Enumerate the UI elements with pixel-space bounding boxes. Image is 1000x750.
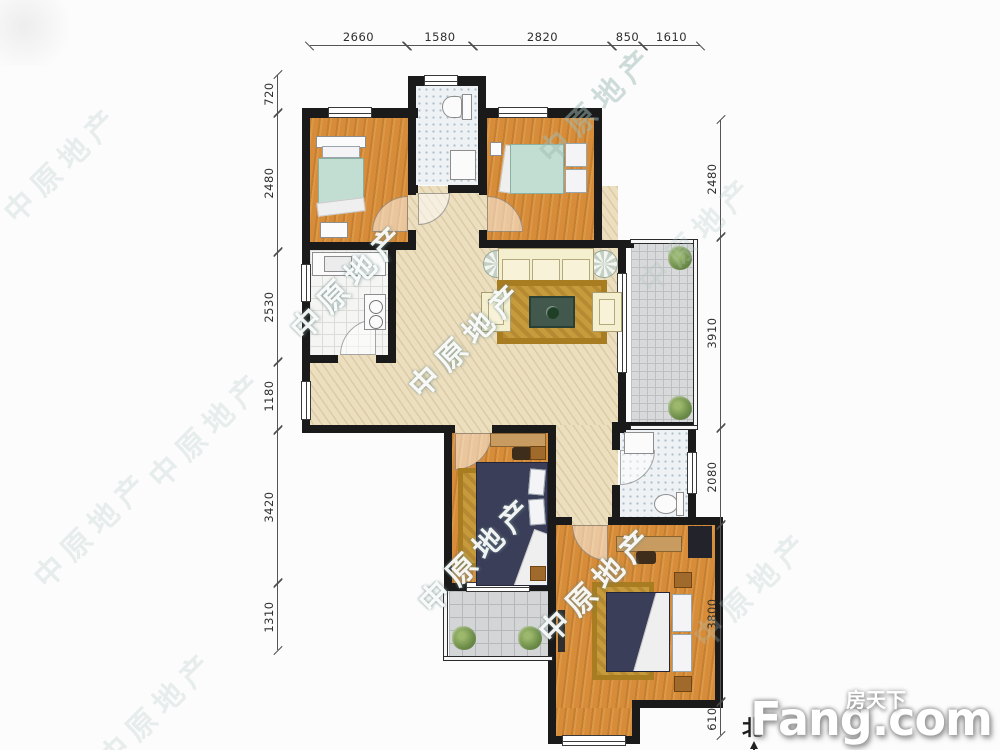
watermark-text: 中原地产 [87,638,226,750]
wall [548,425,556,525]
armchair [592,292,622,332]
toilet-tank [462,94,472,120]
wall [608,517,616,525]
plant [518,626,542,650]
floor-bedroom-bottom-ext [556,708,632,736]
washbasin [450,150,476,180]
paper-smudge [0,0,80,66]
dim-label: 850 [616,30,639,44]
balcony-wall [630,425,698,430]
bed-pillow [672,594,692,632]
dim-segment-right: 610 [720,702,721,735]
dim-segment-top: 1580 [407,45,473,46]
wall [492,425,556,433]
dim-label: 2480 [705,163,719,194]
fang-logo: 房天下 Fang.com [750,692,992,746]
sofa-cushion [502,259,530,281]
wall [548,517,572,525]
bed-pillow [672,634,692,672]
wall [444,425,452,591]
wall [594,108,602,248]
wall [376,355,396,363]
wall [408,118,416,195]
wall [302,242,416,250]
wall [388,244,396,363]
bed-pillow [528,498,546,525]
bed [510,144,564,194]
plant-pot [590,250,618,278]
wall [444,583,468,591]
dim-segment-right: 3800 [720,525,721,702]
bed-pillow [322,146,360,158]
dim-label: 2080 [705,461,719,492]
stove-burner [369,300,383,314]
window [301,381,311,420]
window [687,452,697,494]
coffee-table [529,296,575,328]
stove-burner [369,315,383,329]
window [301,264,311,302]
wall [302,355,338,363]
window [498,107,548,118]
dim-label: 2820 [527,30,558,44]
watermark-text: 中原地产 [22,458,161,597]
wall [548,517,556,744]
sofa-cushion [562,259,590,281]
wall [408,230,416,242]
wall [479,118,487,195]
dim-label: 1180 [262,380,276,411]
balcony-wall [443,656,553,661]
sofa-cushion [532,259,560,281]
fang-logo-chinese: 房天下 [846,684,906,713]
nightstand [530,566,546,581]
dim-segment-left: 720 [277,75,278,113]
dim-label: 2660 [343,30,374,44]
dim-label: 3800 [705,598,719,629]
dim-segment-top: 1610 [643,45,700,46]
armchair-cushion [599,299,615,325]
tv [558,610,565,652]
bed-blanket [633,592,670,672]
toilet-tank [676,492,684,516]
wardrobe [688,526,712,558]
dim-label: 3910 [705,317,719,348]
wall [408,185,418,193]
window [562,735,626,746]
nightstand [674,572,692,588]
dim-label: 1310 [262,601,276,632]
north-arrow-stem [753,746,755,750]
bed-pillow [565,143,587,167]
chair [512,447,532,460]
table-plant [546,306,559,319]
wall [594,240,634,248]
desk [490,433,546,447]
toilet [442,96,462,118]
dim-segment-top: 2660 [310,45,407,46]
wall [612,517,723,525]
wall [618,240,626,273]
chair [636,551,656,564]
dim-segment-top: 2820 [473,45,612,46]
dim-segment-right: 2080 [720,428,721,525]
dim-label: 1580 [424,30,455,44]
dim-segment-left: 3420 [277,430,278,583]
dim-label: 2480 [262,167,276,198]
nightstand [674,676,692,692]
floor-plan-canvas: 2660 1580 2820 850 1610 720 2480 2530 11… [0,0,1000,750]
plant [452,626,476,650]
watermark-text: 中原地产 [137,358,276,497]
dim-label: 2530 [262,291,276,322]
dim-segment-left: 1310 [277,583,278,650]
wall [302,425,455,433]
toilet [654,494,678,514]
dim-label: 610 [705,707,719,730]
wall [479,240,602,248]
bed-pillow [565,169,587,193]
dim-label: 3420 [262,491,276,522]
floor-corridor [548,425,618,525]
bed-pillow [528,468,546,495]
balcony-wall [443,591,448,661]
dim-segment-left: 1180 [277,362,278,430]
dim-segment-right: 2480 [720,120,721,237]
plant [668,396,692,420]
armchair [481,292,511,332]
desk [616,536,682,552]
balcony-wall [693,239,698,430]
bed [606,592,670,672]
dim-label: 720 [262,82,276,105]
dim-label: 1610 [656,30,687,44]
nightstand [490,142,502,156]
window [424,75,458,86]
shower-tray [624,432,654,454]
stove [364,294,386,330]
nightstand [530,446,546,460]
window [328,107,372,118]
watermark-text: 中原地产 [0,93,130,232]
nightstand [320,222,348,238]
balcony-wall [630,239,698,244]
dim-segment-right: 3910 [720,237,721,428]
dim-segment-top: 850 [612,45,643,46]
kitchen-sink [324,256,352,272]
dim-segment-left: 2530 [277,252,278,362]
plant [668,246,692,270]
armchair-cushion [488,299,504,325]
dim-segment-left: 2480 [277,113,278,252]
